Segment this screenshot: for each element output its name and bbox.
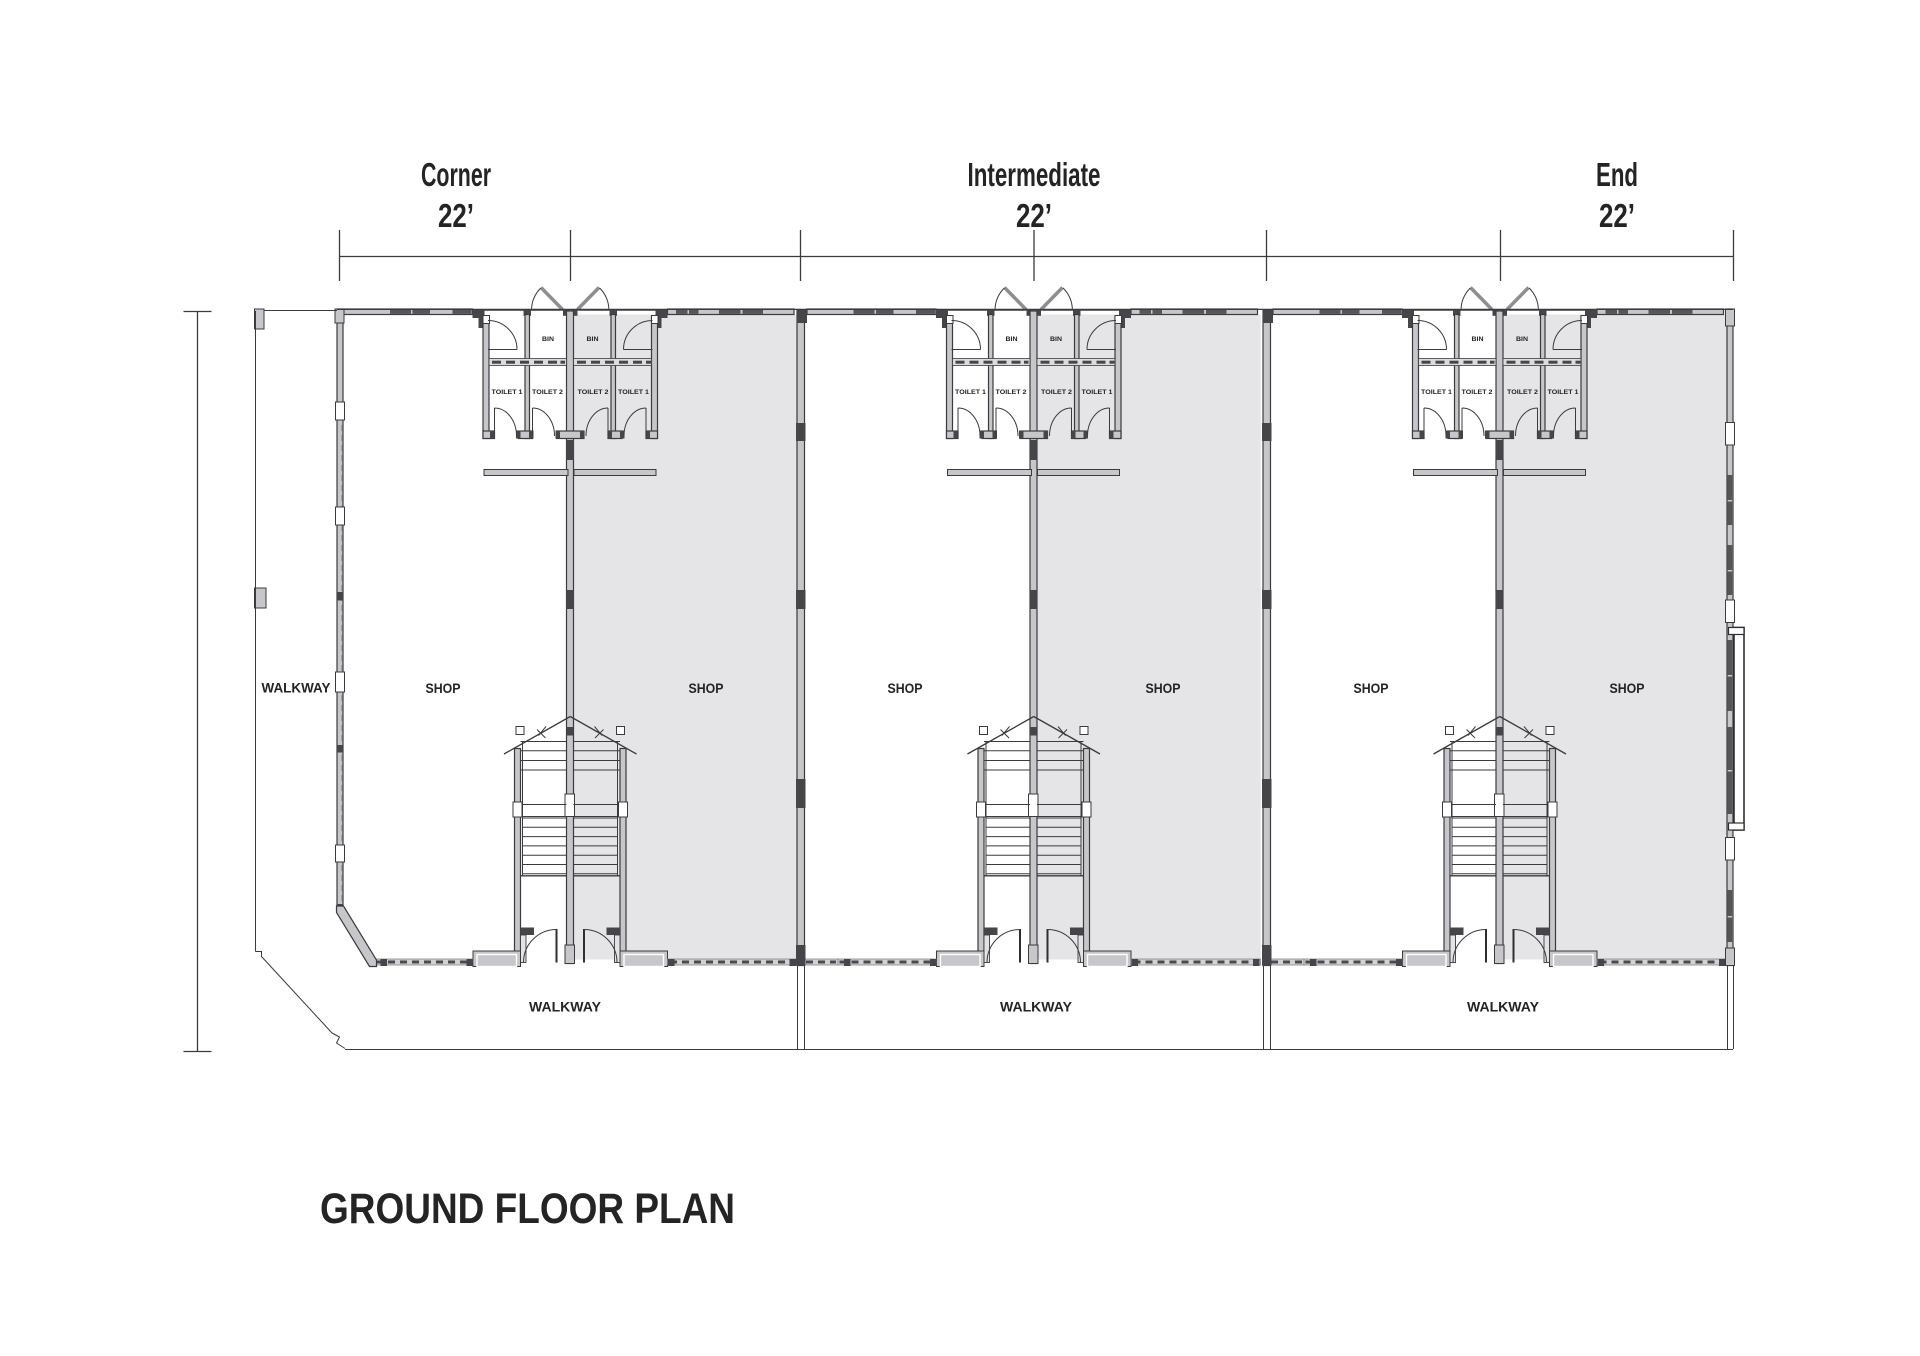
svg-text:End: End	[1596, 156, 1638, 193]
svg-text:22’: 22’	[1599, 197, 1635, 234]
svg-text:WALKWAY: WALKWAY	[529, 1000, 601, 1015]
svg-text:WALKWAY: WALKWAY	[1467, 1000, 1539, 1015]
svg-text:WALKWAY: WALKWAY	[1000, 1000, 1072, 1015]
svg-text:SHOP: SHOP	[1146, 680, 1181, 696]
svg-text:WALKWAY: WALKWAY	[262, 681, 331, 696]
svg-text:Intermediate: Intermediate	[968, 156, 1101, 193]
svg-text:Corner: Corner	[421, 156, 491, 193]
svg-text:GROUND FLOOR PLAN: GROUND FLOOR PLAN	[320, 1186, 735, 1233]
svg-text:SHOP: SHOP	[426, 680, 461, 696]
svg-text:SHOP: SHOP	[888, 680, 923, 696]
svg-text:22’: 22’	[1016, 197, 1052, 234]
svg-text:SHOP: SHOP	[1610, 680, 1645, 696]
svg-text:22’: 22’	[438, 197, 474, 234]
svg-text:SHOP: SHOP	[689, 680, 724, 696]
svg-text:SHOP: SHOP	[1354, 680, 1389, 696]
